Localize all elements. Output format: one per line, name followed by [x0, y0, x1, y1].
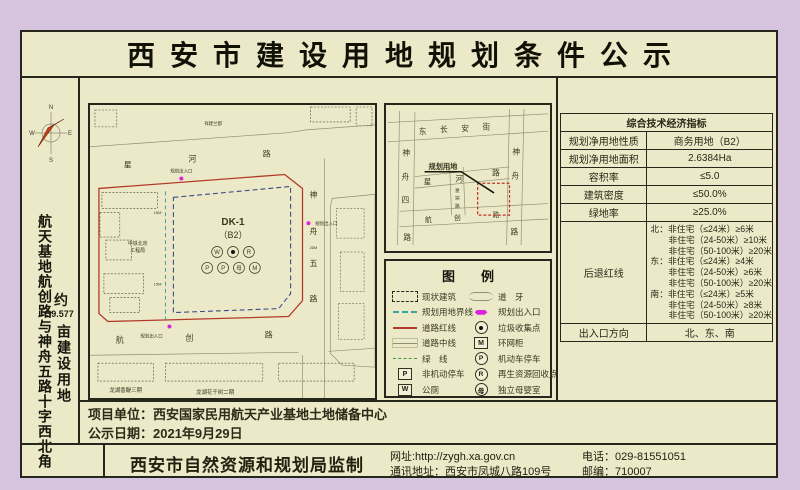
nursing-room-icon: 母: [236, 265, 242, 272]
sidebar: N W E S 航天基地航创路与神舟五路十字西北角 约 39.577 亩建设用地: [22, 78, 80, 443]
street-label: 神: [402, 147, 410, 157]
dim-label-15m: 15M: [154, 210, 162, 215]
table-divider: [556, 78, 558, 400]
site-location-text: 航天基地航创路与神舟五路十字西北角: [35, 214, 55, 472]
planning-notice-page: 西安市建设用地规划条件公示 N W E S 航天基地航创路与神舟五路十字西北角 …: [0, 0, 800, 490]
green-line-swatch: [393, 358, 417, 359]
phone: 电话：029-81551051: [582, 448, 686, 464]
building-label-north: 祥建兰郡: [204, 120, 222, 127]
compass-s: S: [49, 158, 53, 164]
legend-title: 图 例: [391, 266, 545, 285]
entrance-label: 规划出入口: [170, 168, 192, 175]
legend-row: W公厕 母独立母婴室: [391, 382, 545, 398]
road-label: 路: [309, 294, 317, 304]
entrance-marker-north: [179, 177, 183, 181]
street-label: 航: [425, 215, 432, 224]
street-label: 舟: [511, 170, 519, 180]
road-label: 航: [116, 334, 124, 344]
street-label: 安: [461, 123, 469, 133]
legend-row: P非机动停车 R再生资源回收点: [391, 367, 545, 383]
east-buildings: [336, 208, 364, 339]
website: 网址:http://zygh.xa.gov.cn: [390, 448, 515, 464]
table-header: 综合技术经济指标: [561, 114, 773, 132]
curb-swatch: [469, 292, 493, 301]
plan-boundary-swatch: [393, 311, 417, 313]
entrance-label: 规划出入口: [315, 220, 337, 227]
legend-row: 现状建筑 道 牙: [391, 289, 545, 305]
legend-panel: 图 例 现状建筑 道 牙 规划用地界线 规划出入口 道路红线 垃圾收集点 道路中…: [384, 259, 552, 398]
entrance-label: 规划出入口: [140, 332, 162, 339]
postcode: 邮编：710007: [582, 463, 652, 479]
indicator-table: 综合技术经济指标 规划净用地性质商务用地（B2） 规划净用地面积2.6384Ha…: [560, 113, 773, 342]
table-row: 容积率≤5.0: [561, 168, 773, 186]
street-label: 长: [440, 124, 448, 134]
table-row-setback: 后退红线 北：非住宅（≤24米）≥6米 非住宅（24-50米）≥10米 非住宅（…: [561, 222, 773, 324]
building-label-south: 龙湖花千树二期: [196, 388, 235, 396]
site-plan-svg: 祥建兰郡 星 河 路 航 创 路 神 舟: [90, 105, 375, 398]
mail-address: 通讯地址：西安市凤城八路109号: [390, 463, 551, 479]
area-about-label: 约: [54, 290, 68, 310]
road-centerline-swatch: [392, 338, 418, 348]
footer-bar: 西安市自然资源和规划局监制 网址:http://zygh.xa.gov.cn 通…: [22, 443, 776, 478]
ring-cabinet-swatch: M: [474, 337, 488, 349]
south-buildings: [98, 363, 354, 381]
legend-row: 道路中线 M环网柜: [391, 336, 545, 352]
street-label: 街: [482, 121, 490, 131]
table-row: 规划净用地性质商务用地（B2）: [561, 132, 773, 150]
street-label: 路: [403, 232, 411, 242]
table-row: 绿地率≥25.0%: [561, 204, 773, 222]
dim-label-15m: 15M: [154, 282, 162, 287]
area-unit-label: 亩建设用地: [54, 324, 74, 404]
street-label: 河: [455, 174, 463, 183]
toilet-swatch: W: [398, 384, 412, 396]
street-label: 路: [455, 202, 460, 209]
project-unit: 项目单位：西安国家民用航天产业基地土地储备中心: [88, 404, 387, 423]
producer-label: 西安市自然资源和规划局监制: [130, 451, 364, 476]
publicity-date: 公示日期：2021年9月29日: [88, 423, 243, 442]
existing-building-swatch: [392, 291, 418, 302]
road-label: 路: [263, 149, 271, 159]
road-label: 路: [265, 329, 273, 339]
street-label: 路: [510, 226, 518, 236]
plot-callout-label: 规划用地: [427, 162, 458, 171]
motor-parking-swatch: P: [475, 352, 488, 365]
compass-e: E: [68, 131, 72, 137]
nursing-room-swatch: 母: [475, 383, 488, 396]
table-row: 规划净用地面积2.6384Ha: [561, 150, 773, 168]
building-label-west: 工程局: [130, 247, 145, 254]
legend-row: 规划用地界线 规划出入口: [391, 305, 545, 321]
recycle-icon: R: [247, 250, 252, 256]
recycle-point-swatch: R: [475, 368, 488, 381]
road-label: 创: [185, 332, 193, 342]
table-row: 出入口方向北、东、南: [561, 324, 773, 342]
street-label: 四: [401, 196, 409, 205]
parking-icon: P: [221, 266, 225, 272]
ring-cabinet-icon: M: [252, 266, 257, 272]
legend-row: 道路红线 垃圾收集点: [391, 320, 545, 336]
notice-document: 西安市建设用地规划条件公示 N W E S 航天基地航创路与神舟五路十字西北角 …: [20, 30, 778, 478]
site-plan-map: 祥建兰郡 星 河 路 航 创 路 神 舟: [88, 103, 377, 400]
project-info: 项目单位：西安国家民用航天产业基地土地储备中心 公示日期：2021年9月29日: [78, 400, 776, 443]
plot-highlight-square: [478, 183, 510, 215]
road-label: 五: [309, 259, 317, 268]
street-label: 东: [419, 126, 427, 136]
road-label: 河: [188, 154, 196, 164]
dim-label-20m: 20M: [310, 245, 318, 250]
area-value: 39.577: [42, 309, 78, 319]
garbage-point-swatch: [475, 321, 488, 334]
entrance-marker-east: [306, 221, 310, 225]
street-label: 神: [512, 146, 520, 156]
legend-row: 绿 线 P机动车停车: [391, 351, 545, 367]
table-row: 建筑密度≤50.0%: [561, 186, 773, 204]
plot-code: DK-1: [221, 217, 245, 228]
bike-parking-swatch: P: [398, 368, 412, 380]
road-label: 星: [124, 161, 132, 170]
location-map-svg: 东 长 安 街 神 舟 四 路 神 舟 路 星 河 路 星 宗 路 航 创 路: [386, 105, 550, 251]
building-label-south: 龙湖香醍三期: [109, 386, 142, 394]
street-label: 星: [455, 188, 460, 194]
road-label: 神: [309, 189, 317, 199]
compass-w: W: [29, 131, 35, 137]
north-buildings: [95, 107, 372, 127]
entrance-marker-south: [167, 324, 171, 328]
street-label: 创: [454, 213, 461, 222]
location-map: 东 长 安 街 神 舟 四 路 神 舟 路 星 河 路 星 宗 路 航 创 路: [384, 103, 552, 253]
compass-icon: N W E S: [29, 100, 73, 166]
road-redline-swatch: [393, 327, 417, 329]
compass-n: N: [49, 105, 53, 111]
street-label: 星: [424, 177, 432, 186]
footer-divider: [103, 445, 105, 478]
road-label: 舟: [309, 226, 317, 236]
west-buildings: [100, 192, 158, 312]
toilet-icon: W: [214, 250, 220, 256]
plot-use: （B2）: [219, 230, 248, 240]
page-title: 西安市建设用地规划条件公示: [112, 34, 686, 74]
building-label-west: 中铁北京: [128, 240, 148, 247]
garbage-point-icon: [231, 250, 235, 254]
road-edges: [90, 125, 375, 398]
street-label: 舟: [401, 171, 409, 181]
title-bar: 西安市建设用地规划条件公示: [22, 32, 776, 78]
street-label: 路: [492, 168, 500, 178]
street-label: 宗: [455, 195, 460, 202]
entrance-swatch: [475, 310, 488, 315]
parking-icon: P: [205, 266, 209, 272]
